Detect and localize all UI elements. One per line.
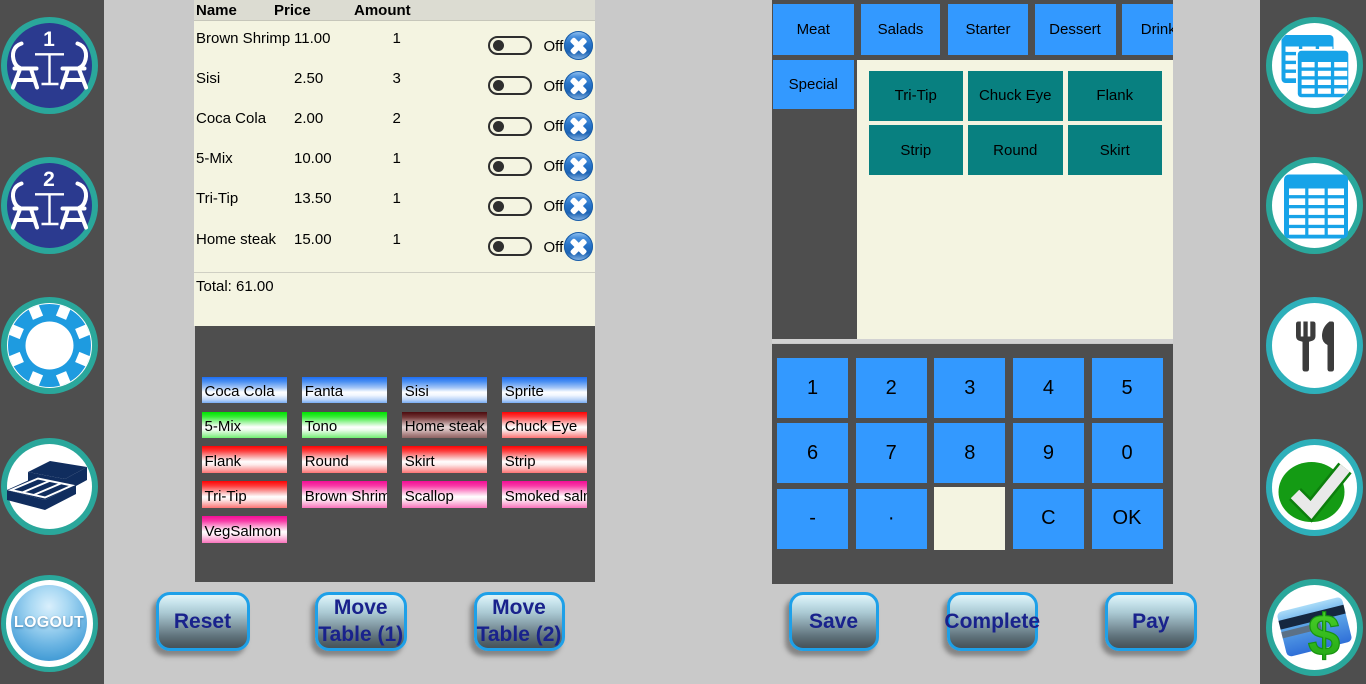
svg-text:$: $	[1308, 603, 1340, 668]
